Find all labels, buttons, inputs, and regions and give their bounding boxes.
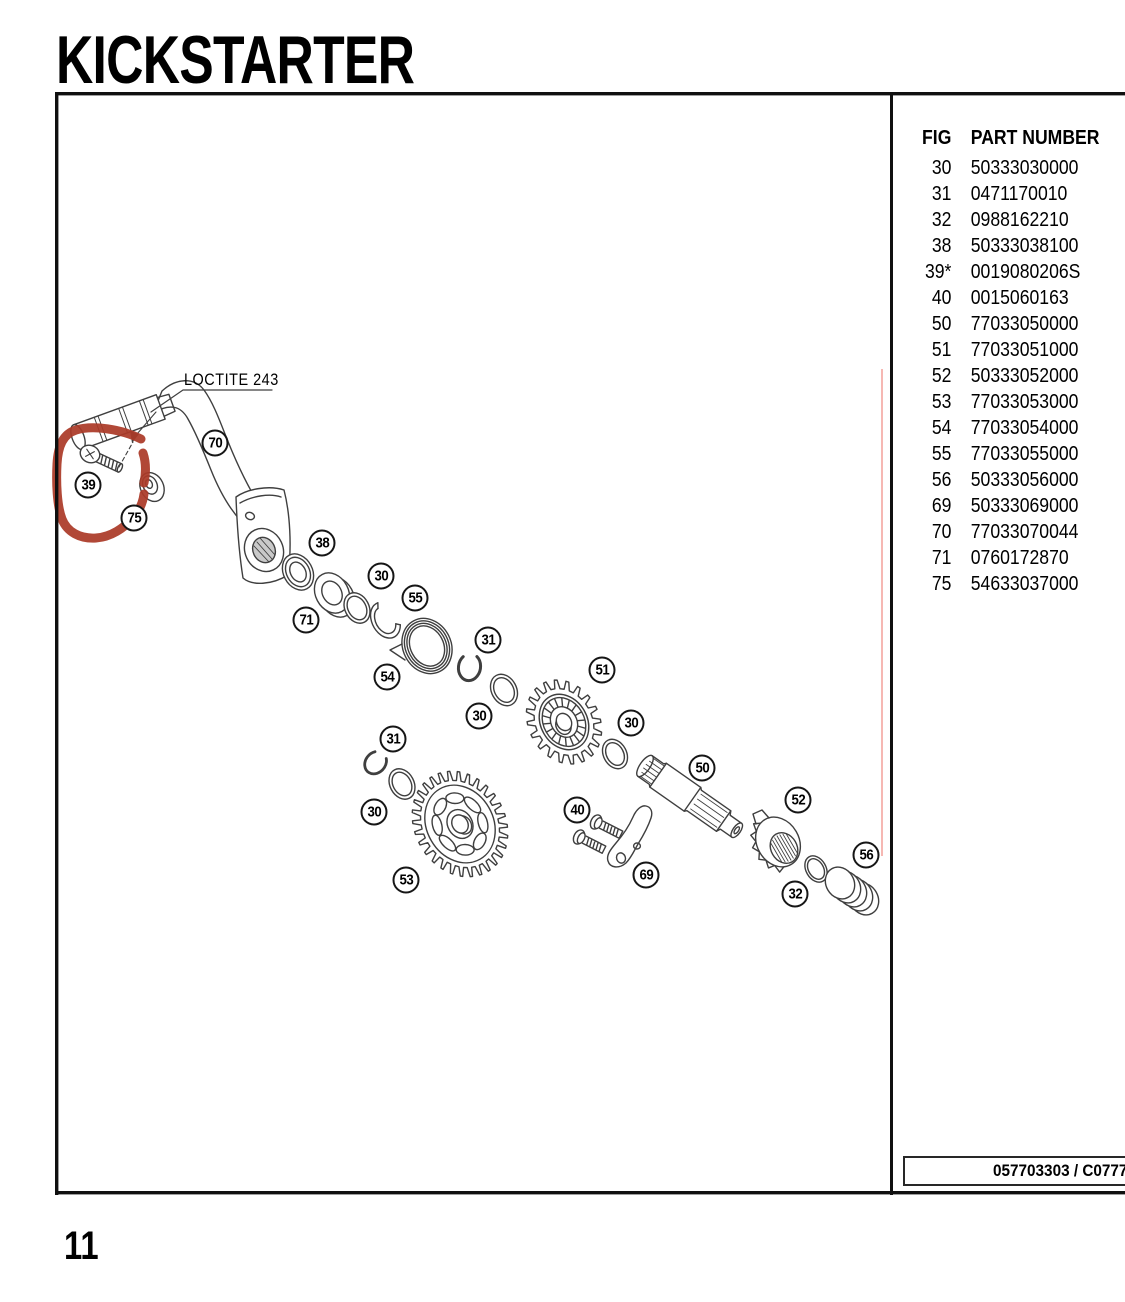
table-row: 400015060163 <box>903 285 1114 311</box>
fig-cell: 30 <box>903 155 951 181</box>
part-number-cell: 77033053000 <box>971 389 1079 415</box>
table-row: 39*0019080206S <box>903 259 1114 285</box>
fig-cell: 32 <box>903 207 951 233</box>
table-row: 5477033054000 <box>903 415 1114 441</box>
fig-cell: 75 <box>903 571 951 597</box>
main-gear-53 <box>393 754 526 894</box>
table-row: 320988162210 <box>903 207 1114 233</box>
part-number-cell: 54633037000 <box>971 571 1079 597</box>
table-row: 710760172870 <box>903 545 1114 571</box>
part-number-cell: 77033055000 <box>971 441 1079 467</box>
part-number-cell: 50333038100 <box>971 233 1079 259</box>
spring-56 <box>820 862 885 921</box>
fig-cell: 56 <box>903 467 951 493</box>
parts-table-rows: 3050333030000310471170010320988162210385… <box>903 155 1114 597</box>
marker-annotation-circle <box>57 428 146 538</box>
part-number-cell: 77033070044 <box>971 519 1079 545</box>
washer-30c <box>598 735 633 773</box>
shaft-50 <box>633 751 749 844</box>
table-row: 5577033055000 <box>903 441 1114 467</box>
part-number-cell: 0988162210 <box>971 207 1069 233</box>
fig-cell: 39* <box>903 259 951 285</box>
idler-gear-51 <box>512 666 617 777</box>
table-row: 5177033051000 <box>903 337 1114 363</box>
fig-cell: 53 <box>903 389 951 415</box>
fig-cell: 51 <box>903 337 951 363</box>
washer-30d <box>384 764 420 804</box>
table-row: 3050333030000 <box>903 155 1114 181</box>
fig-cell: 50 <box>903 311 951 337</box>
table-row: 5377033053000 <box>903 389 1114 415</box>
part-number-cell: 0015060163 <box>971 285 1069 311</box>
part-number-cell: 77033051000 <box>971 337 1079 363</box>
parts-table: FIG PART NUMBER 305033303000031047117001… <box>903 127 1114 597</box>
fig-cell: 69 <box>903 493 951 519</box>
fig-cell: 54 <box>903 415 951 441</box>
part-number-cell: 77033054000 <box>971 415 1079 441</box>
part-number-cell: 50333052000 <box>971 363 1079 389</box>
washer-30b <box>485 670 523 711</box>
ratchet-52 <box>742 809 809 878</box>
circlip-31a <box>456 654 482 683</box>
manual-page: KICKSTARTER <box>0 0 1125 1302</box>
spring-washer-55 <box>365 598 404 643</box>
table-row: 7077033070044 <box>903 519 1114 545</box>
table-row: 5650333056000 <box>903 467 1114 493</box>
fig-cell: 52 <box>903 363 951 389</box>
part-number-cell: 50333069000 <box>971 493 1079 519</box>
part-number-cell: 0760172870 <box>971 545 1069 571</box>
table-row: 310471170010 <box>903 181 1114 207</box>
part-number-cell: 50333030000 <box>971 155 1079 181</box>
table-row: 6950333069000 <box>903 493 1114 519</box>
loctite-label: LOCTITE 243 <box>184 372 279 388</box>
kick-lever <box>68 381 291 584</box>
plate-code-box: 057703303 / C0777 <box>903 1156 1125 1186</box>
table-row: 3850333038100 <box>903 233 1114 259</box>
part-number-cell: 77033050000 <box>971 311 1079 337</box>
fig-cell: 71 <box>903 545 951 571</box>
part-number-cell: 50333056000 <box>971 467 1079 493</box>
parts-table-header: FIG PART NUMBER <box>903 127 1114 149</box>
screw-40a <box>588 813 624 841</box>
table-row: 5077033050000 <box>903 311 1114 337</box>
fig-cell: 70 <box>903 519 951 545</box>
fig-cell: 38 <box>903 233 951 259</box>
part-number-cell: 0471170010 <box>971 181 1068 207</box>
part-number-column-header: PART NUMBER <box>971 127 1100 149</box>
screw-40b <box>571 828 607 856</box>
fig-cell: 40 <box>903 285 951 311</box>
fig-cell: 55 <box>903 441 951 467</box>
circlip-31b <box>360 749 389 779</box>
part-number-cell: 0019080206S <box>971 259 1081 285</box>
fig-column-header: FIG <box>903 127 951 149</box>
coil-spring-54 <box>390 610 462 683</box>
bolt <box>77 442 125 476</box>
table-row: 5250333052000 <box>903 363 1114 389</box>
fig-cell: 31 <box>903 181 951 207</box>
plate-code: 057703303 / C0777 <box>993 1161 1125 1181</box>
table-row: 7554633037000 <box>903 571 1114 597</box>
